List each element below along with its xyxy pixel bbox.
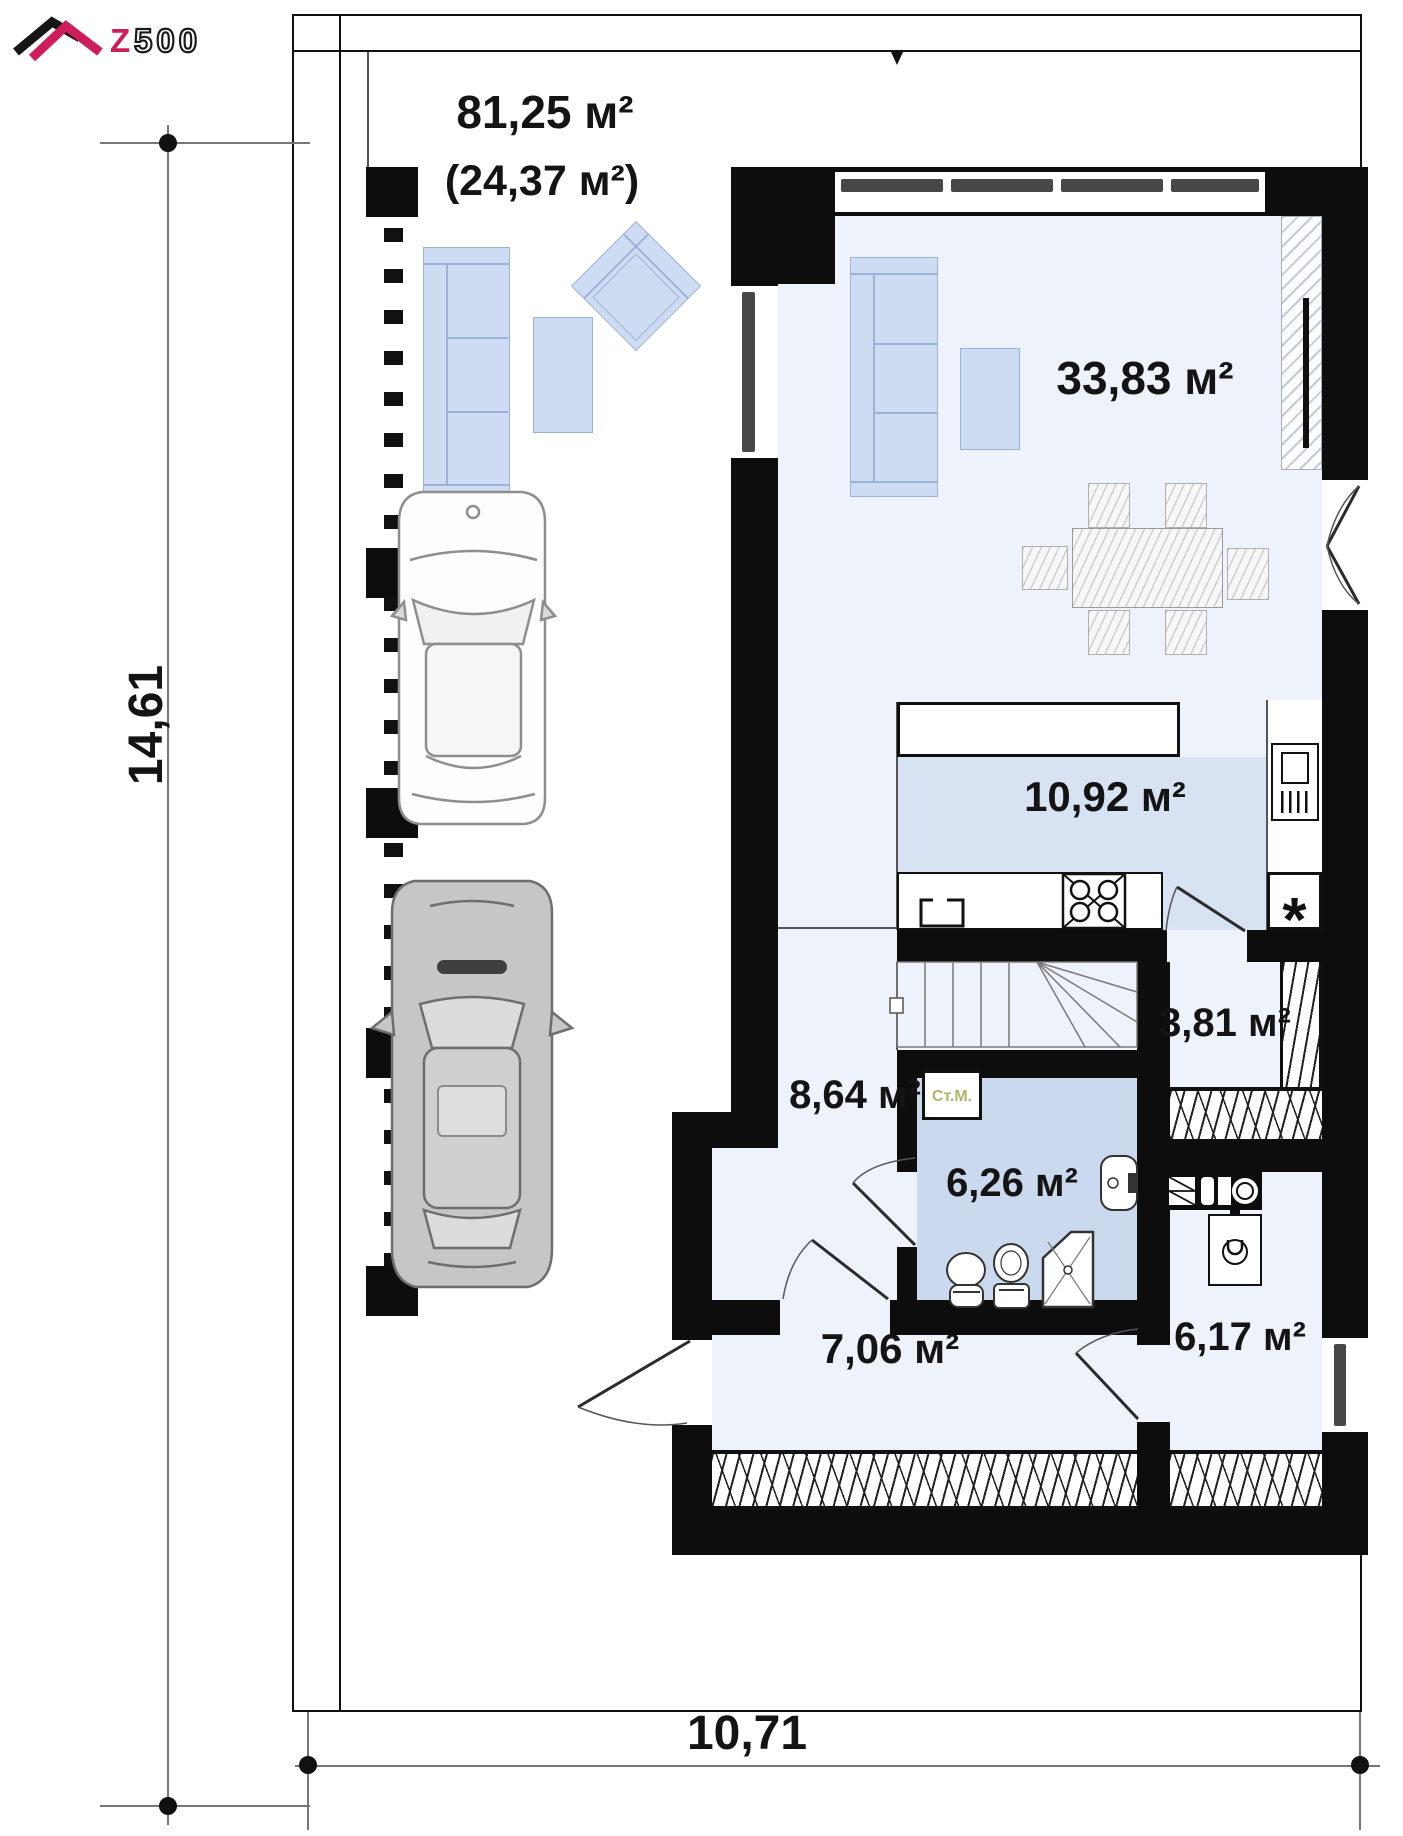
floor-plan: 14,61 10,71 <box>0 0 1403 1836</box>
label-living-room: 33,83 м² <box>985 352 1305 404</box>
z500-roof-icon <box>10 8 110 66</box>
label-pantry: 3,81 м² <box>1125 1001 1325 1045</box>
stair <box>890 962 1137 1047</box>
kitchen-sink-icon <box>921 900 963 926</box>
label-carport-total: 81,25 м² <box>395 86 695 138</box>
bidet-icon <box>947 1253 985 1307</box>
z500-logo: Z 500 <box>10 8 230 66</box>
toilet-icon <box>994 1244 1029 1308</box>
label-bathroom: 6,26 м² <box>912 1161 1112 1205</box>
label-hall: 8,64 м² <box>755 1073 955 1117</box>
stove-icon <box>1063 874 1125 928</box>
car-top-icon <box>392 492 555 824</box>
shower-icon <box>1043 1232 1093 1307</box>
label-entry: 7,06 м² <box>765 1326 1015 1372</box>
label-carport-roofed: (24,37 м²) <box>392 156 692 206</box>
plan-linework <box>0 0 1403 1836</box>
car-bottom-icon <box>372 881 572 1287</box>
logo-text-500: 500 <box>134 22 201 60</box>
label-utility: 6,17 м² <box>1140 1315 1340 1359</box>
label-kitchen: 10,92 м² <box>955 773 1255 821</box>
logo-text-z: Z <box>110 22 131 60</box>
